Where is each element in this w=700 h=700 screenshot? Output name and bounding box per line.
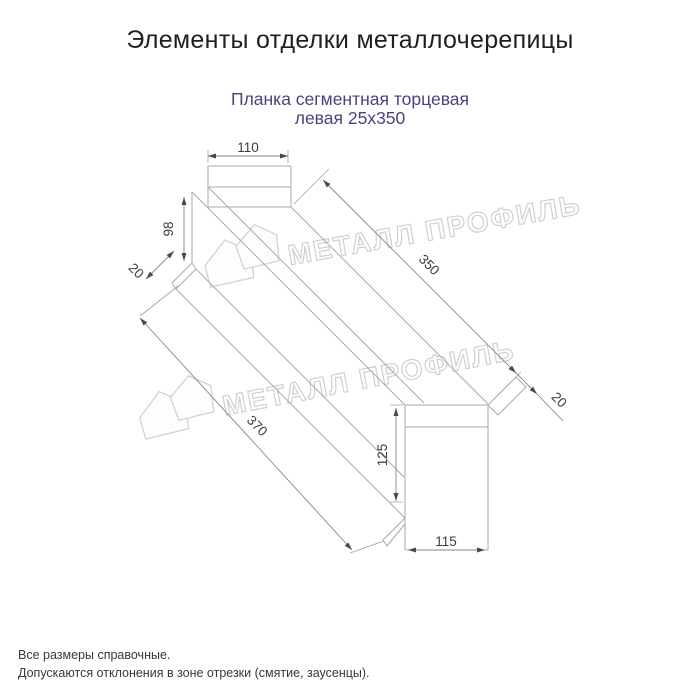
dim-label-end-height: 125 xyxy=(375,444,390,467)
dim-label-side-height: 98 xyxy=(161,221,176,236)
metall-profil-house-logo-icon xyxy=(134,372,219,440)
technical-drawing: МЕТАЛЛ ПРОФИЛЬ МЕТАЛЛ ПРОФИЛЬ 110 xyxy=(0,0,700,700)
near-hem-flap xyxy=(172,263,196,289)
footer-note-2: Допускаются отклонения в зоне отрезки (с… xyxy=(18,664,370,682)
footer-note-1: Все размеры справочные. xyxy=(18,646,370,664)
dim-line-20-near xyxy=(146,251,174,279)
dim-label-flange-width: 110 xyxy=(237,140,259,155)
far-hem-flap xyxy=(488,377,526,415)
dim-line-370 xyxy=(140,318,352,550)
product-drawing-page: { "header": { "title": "Элементы отделки… xyxy=(0,0,700,700)
far-hem-end xyxy=(383,518,405,546)
watermark-1: МЕТАЛЛ ПРОФИЛЬ xyxy=(199,168,584,287)
dim-label-length: 350 xyxy=(416,252,443,279)
near-end-flange-face xyxy=(208,166,291,207)
footer-notes: Все размеры справочные. Допускаются откл… xyxy=(18,646,370,682)
dim-line-20-far xyxy=(516,373,537,394)
dim-label-near-hem: 20 xyxy=(126,260,147,281)
dim-label-end-width: 115 xyxy=(435,534,457,549)
far-end-face xyxy=(405,405,488,550)
dim-label-far-hem: 20 xyxy=(549,389,570,410)
metall-profil-house-logo-icon xyxy=(199,221,283,287)
